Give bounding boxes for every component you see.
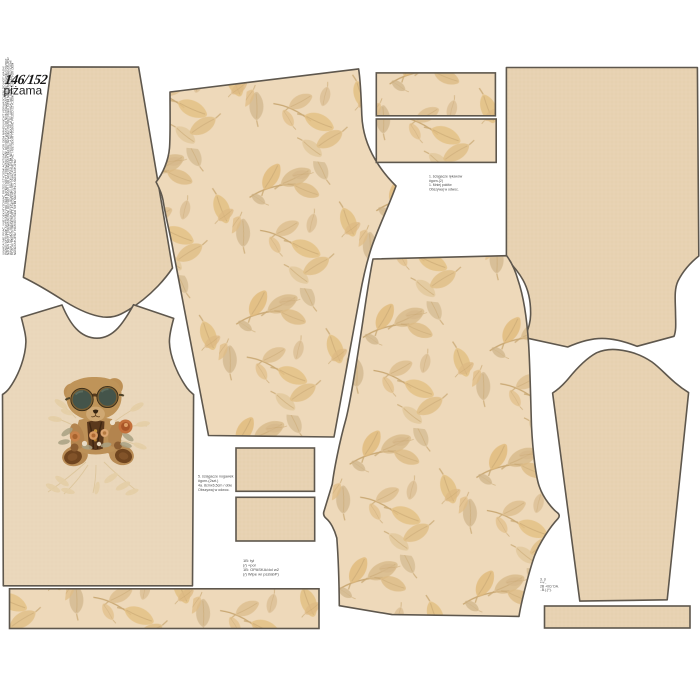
- svg-text:NEDEKATUJTE! POZOR! PŘED ŠITÍM: NEDEKATUJTE! POZOR! PŘED ŠITÍM NEPERTE A…: [12, 159, 17, 255]
- svg-text:5. ściągacze nogawek: 5. ściągacze nogawek: [198, 475, 234, 479]
- svg-text:4a. 8cmx6,5cm / obie: 4a. 8cmx6,5cm / obie: [198, 484, 232, 488]
- svg-text:..B.(.)*).: ..B.(.)*).: [540, 588, 552, 592]
- svg-text:(/) Wipe w/ pszlabP): (/) Wipe w/ pszlabP): [243, 572, 279, 577]
- svg-text:Obszywaj w odwoc.: Obszywaj w odwoc.: [198, 488, 230, 492]
- svg-text:#gorn-(2szt.): #gorn-(2szt.): [198, 479, 218, 483]
- svg-text:Obszywaj w odwoc.: Obszywaj w odwoc.: [429, 187, 459, 191]
